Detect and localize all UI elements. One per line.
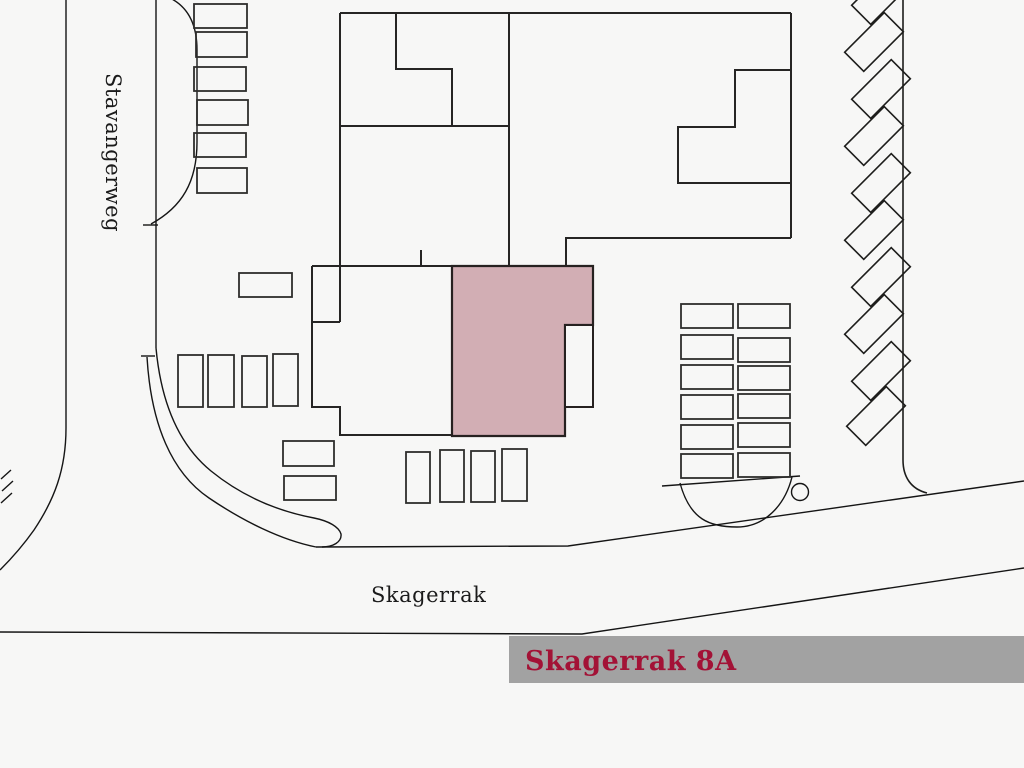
address-banner: Skagerrak 8A (509, 636, 1024, 683)
street-label-skagerrak: Skagerrak (371, 583, 486, 607)
address-banner-text: Skagerrak 8A (525, 646, 737, 677)
building-notch (565, 325, 593, 407)
site-plan-map: Stavangerweg Skagerrak Skagerrak 8A (0, 0, 1024, 768)
street-label-stavangerweg: Stavangerweg (101, 73, 125, 232)
